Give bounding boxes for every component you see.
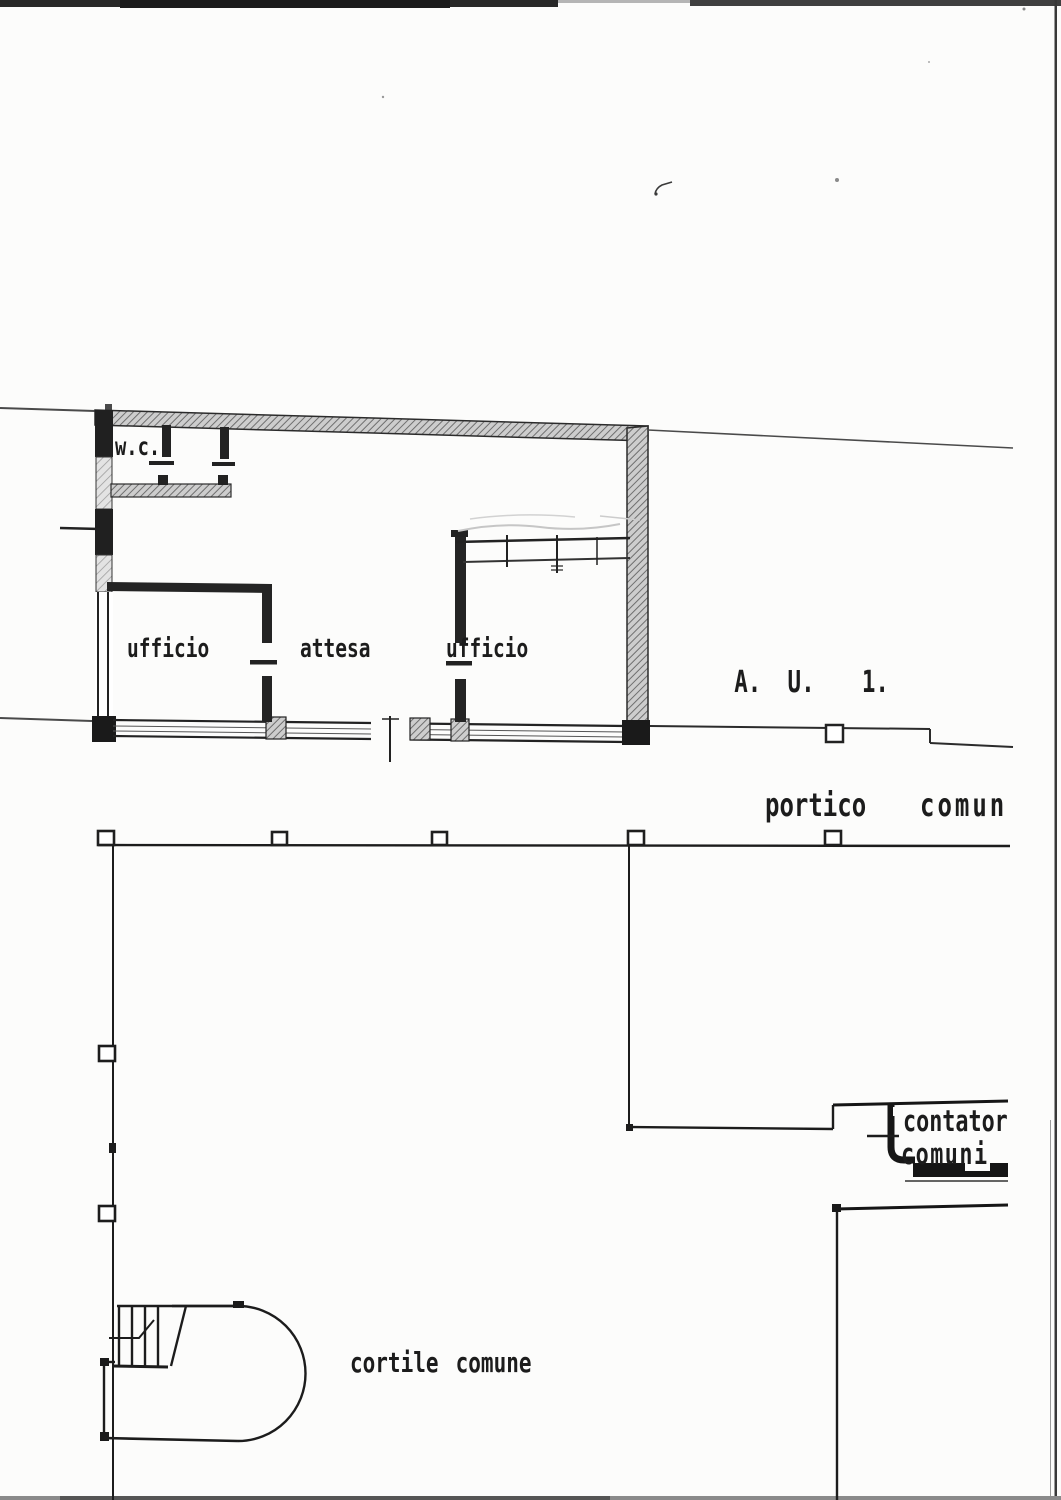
scanned-floor-plan-page: w.c. ufficio attesa ufficio A.U.1. porti… (0, 0, 1061, 1500)
scan-artifacts (0, 0, 1061, 1500)
staircase (100, 1301, 306, 1441)
floor-plan-drawing (0, 0, 1061, 1500)
office-right-label: ufficio (446, 636, 528, 662)
unit-code-part3: 1. (862, 665, 889, 700)
unit-code-label: A.U.1. (680, 638, 889, 728)
courtyard-label: cortile comune (350, 1349, 532, 1377)
unit-code-part2: U. (788, 665, 815, 700)
portico-comun-label: comun (920, 789, 1007, 821)
meters-label-line1: contator (903, 1107, 1008, 1136)
portico (98, 725, 1013, 846)
portico-label: portico (765, 789, 866, 821)
meters-label-line2: comuni (901, 1140, 989, 1169)
lower-building-corner (832, 1204, 1008, 1500)
waiting-room-label: attesa (300, 636, 370, 662)
courtyard-boundary (99, 845, 1008, 1500)
office-left-label: ufficio (127, 636, 209, 662)
wc-label: w.c. (115, 434, 160, 459)
reception-counter (456, 515, 640, 573)
unit-code-part1: A. (734, 665, 761, 700)
office-partitions (107, 530, 472, 722)
